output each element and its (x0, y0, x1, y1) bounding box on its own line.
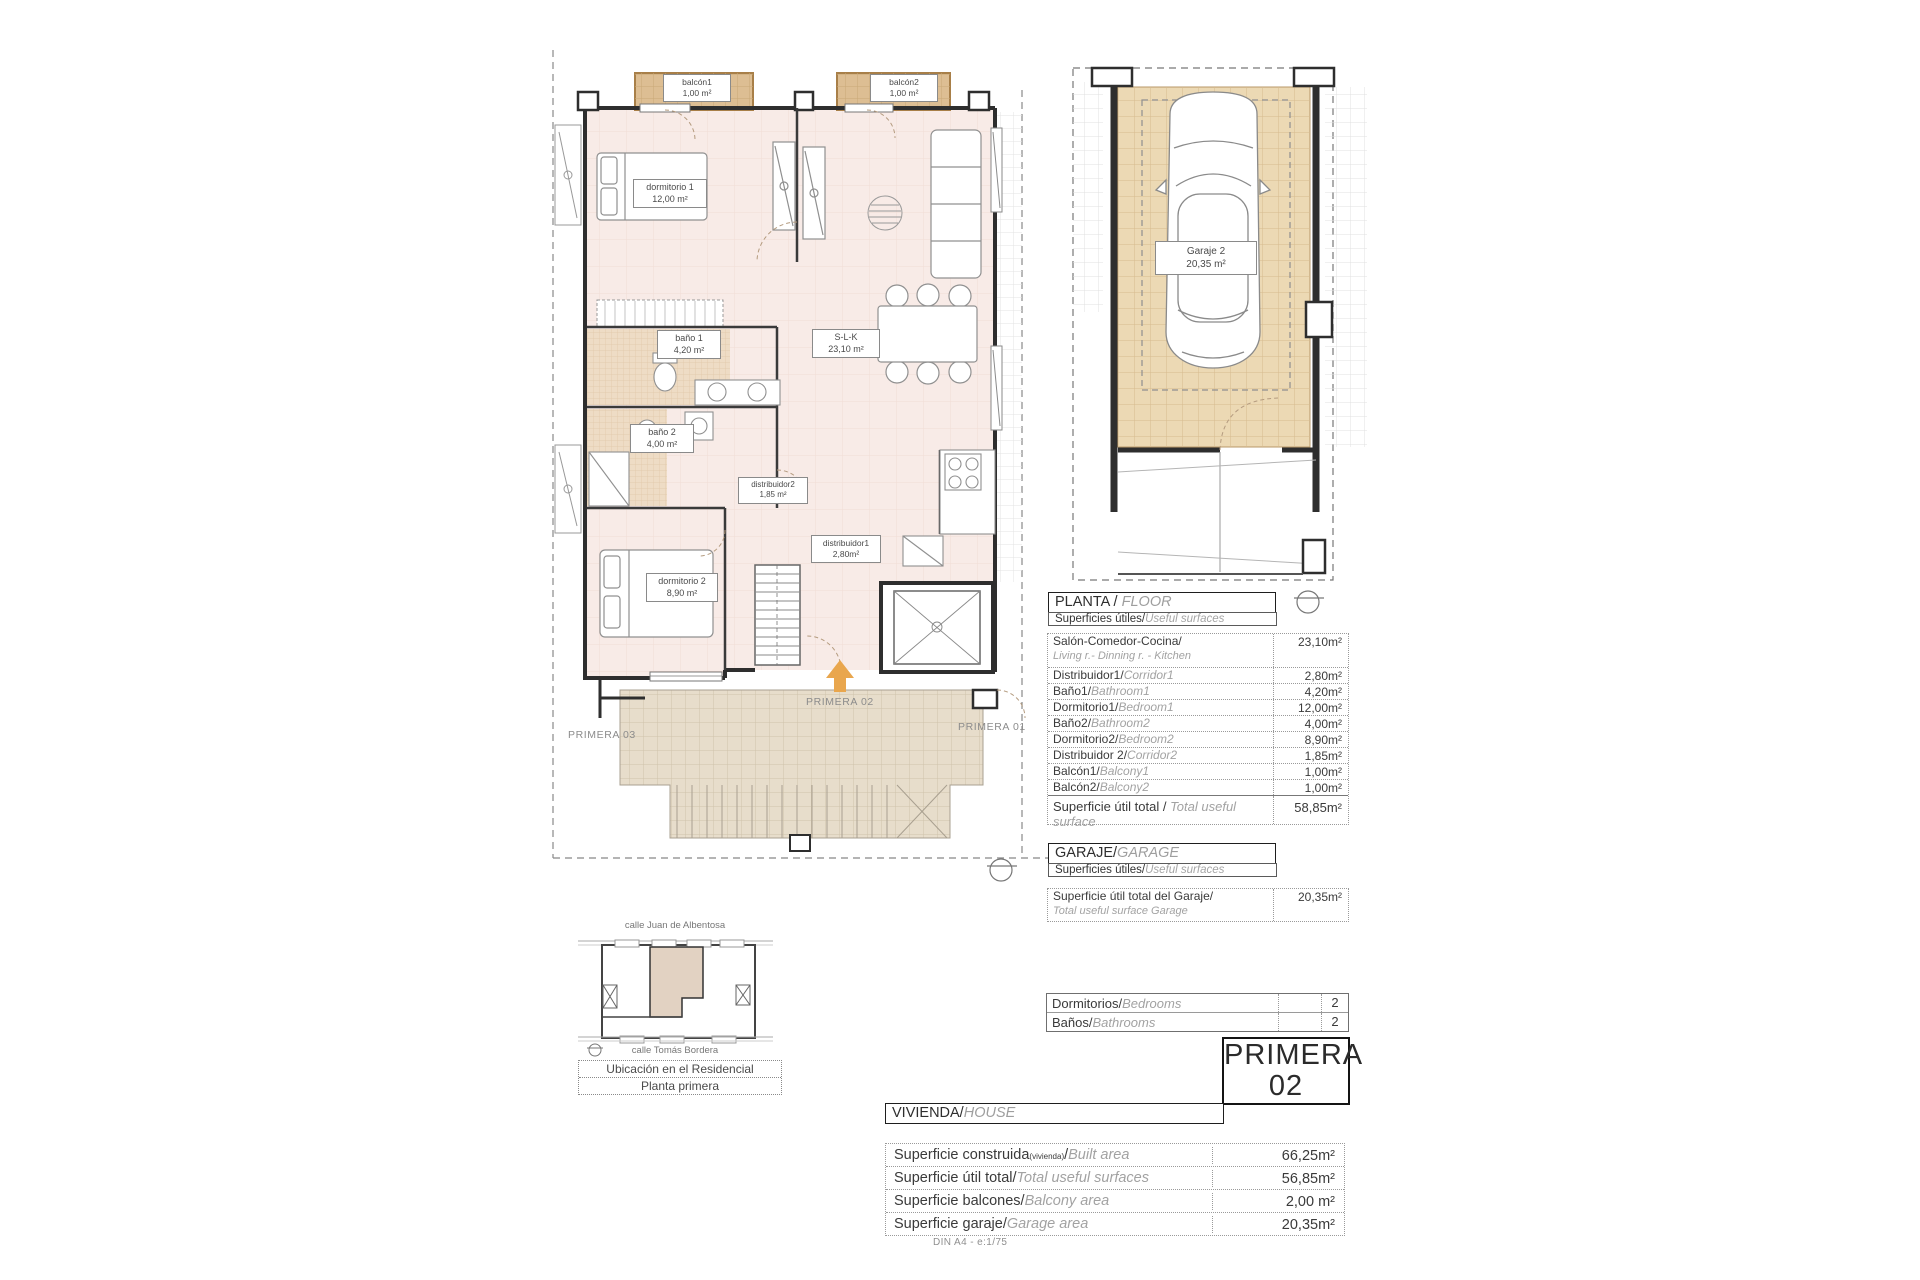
compass-icon (1292, 588, 1328, 616)
room-label-distribuidor2: distribuidor2 1,85 m² (738, 477, 808, 504)
unit-badge: PRIMERA 02 (1222, 1037, 1350, 1105)
room-label-bano2: baño 2 4,00 m² (630, 424, 694, 453)
rooms-count-table: Dormitorios/Bedrooms 2 Baños/Bathrooms 2 (1046, 993, 1349, 1032)
scale-footnote: DIN A4 - e:1/75 (933, 1237, 1007, 1248)
table-row: Dormitorios/Bedrooms 2 (1047, 994, 1348, 1012)
street-name-bottom: calle Tomás Bordera (600, 1045, 750, 1056)
planta-table-subtitle: Superficies útiles/Useful surfaces (1048, 612, 1277, 626)
table-row: Superficie útil total/Total useful surfa… (886, 1166, 1344, 1189)
garaje-table-title: GARAJE/GARAGE (1048, 843, 1276, 864)
table-row: Superficie útil total del Garaje/ Total … (1048, 889, 1348, 921)
minimap-caption-line1: Ubicación en el Residencial (579, 1061, 781, 1078)
table-row: Distribuidor 2/Corridor2 1,85m² (1048, 747, 1348, 763)
minimap-caption: Ubicación en el Residencial Planta prime… (578, 1060, 782, 1095)
table-row: Superficie garaje/Garage area 20,35m² (886, 1212, 1344, 1235)
table-row: Superficie construida(vivienda)/Built ar… (886, 1144, 1344, 1166)
vivienda-table-title: VIVIENDA/HOUSE (885, 1103, 1224, 1124)
table-row: Balcón2/Balcony2 1,00m² (1048, 779, 1348, 795)
unit-badge-line1: PRIMERA (1224, 1040, 1348, 1071)
unit-annotation-primera03: PRIMERA 03 (568, 729, 636, 741)
unit-annotation-primera02: PRIMERA 02 (806, 696, 874, 708)
garaje-table-subtitle: Superficies útiles/Useful surfaces (1048, 863, 1277, 877)
neighbor-window-icon (555, 125, 581, 533)
room-label-bano1: baño 1 4,20 m² (657, 330, 721, 359)
planta-table-title: PLANTA / FLOOR (1048, 592, 1276, 613)
table-row: Dormitorio1/Bedroom1 12,00m² (1048, 699, 1348, 715)
room-label-balcon1: balcón1 1,00 m² (663, 74, 731, 102)
main-floor-plan-drawing (545, 50, 1090, 890)
room-label-balcon2: balcón2 1,00 m² (870, 74, 938, 102)
planta-surfaces-table: Salón-Comedor-Cocina/ Living r.- Dinning… (1047, 633, 1349, 825)
table-row: Superficie balcones/Balcony area 2,00 m² (886, 1189, 1344, 1212)
room-label-slk: S-L-K 23,10 m² (812, 329, 880, 358)
room-label-dormitorio2: dormitorio 2 8,90 m² (646, 573, 718, 602)
car (1156, 92, 1270, 368)
room-label-garaje2: Garaje 2 20,35 m² (1155, 241, 1257, 275)
table-row: Distribuidor1/Corridor1 2,80m² (1048, 667, 1348, 683)
room-label-dormitorio1: dormitorio 1 12,00 m² (633, 179, 707, 208)
table-row: Baño1/Bathroom1 4,20m² (1048, 683, 1348, 699)
unit-badge-line2: 02 (1224, 1071, 1348, 1102)
dining-set (878, 284, 977, 384)
table-row: Baño2/Bathroom2 4,00m² (1048, 715, 1348, 731)
room-label-distribuidor1: distribuidor1 2,80m² (811, 535, 881, 563)
table-row: Baños/Bathrooms 2 (1047, 1012, 1348, 1031)
garaje-surfaces-table: Superficie útil total del Garaje/ Total … (1047, 888, 1349, 922)
unit-annotation-primera01: PRIMERA 01 (958, 721, 1026, 733)
table-row: Balcón1/Balcony1 1,00m² (1048, 763, 1348, 779)
table-total-row: Superficie útil total / Total useful sur… (1048, 795, 1348, 824)
table-row: Dormitorio2/Bedroom2 8,90m² (1048, 731, 1348, 747)
elevator (881, 583, 993, 672)
floor-plan-sheet: balcón1 1,00 m² balcón2 1,00 m² dormitor… (0, 0, 1920, 1280)
compass-icon (986, 856, 1020, 884)
street-name-top: calle Juan de Albentosa (600, 920, 750, 931)
table-row: Salón-Comedor-Cocina/ Living r.- Dinning… (1048, 634, 1348, 667)
minimap-caption-line2: Planta primera (579, 1078, 781, 1094)
garage-plan-drawing (1070, 52, 1370, 600)
vivienda-surfaces-table: Superficie construida(vivienda)/Built ar… (885, 1143, 1345, 1236)
